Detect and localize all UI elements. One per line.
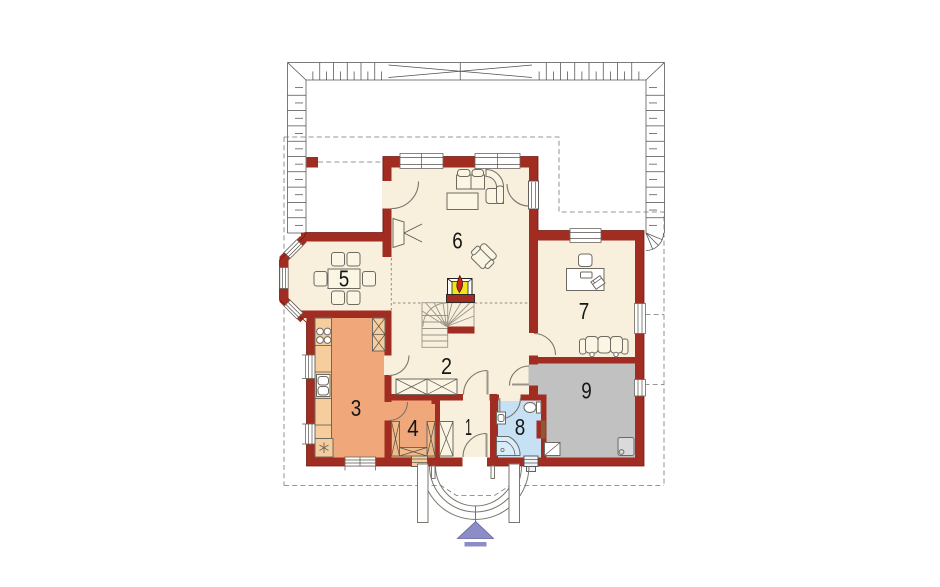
- svg-text:5: 5: [339, 266, 350, 292]
- svg-text:8: 8: [515, 414, 526, 440]
- svg-text:7: 7: [579, 298, 590, 324]
- svg-text:9: 9: [581, 378, 592, 404]
- svg-text:1: 1: [465, 414, 472, 440]
- svg-text:6: 6: [452, 228, 463, 254]
- svg-text:2: 2: [441, 353, 452, 379]
- svg-text:4: 4: [407, 415, 419, 441]
- svg-text:3: 3: [351, 395, 362, 421]
